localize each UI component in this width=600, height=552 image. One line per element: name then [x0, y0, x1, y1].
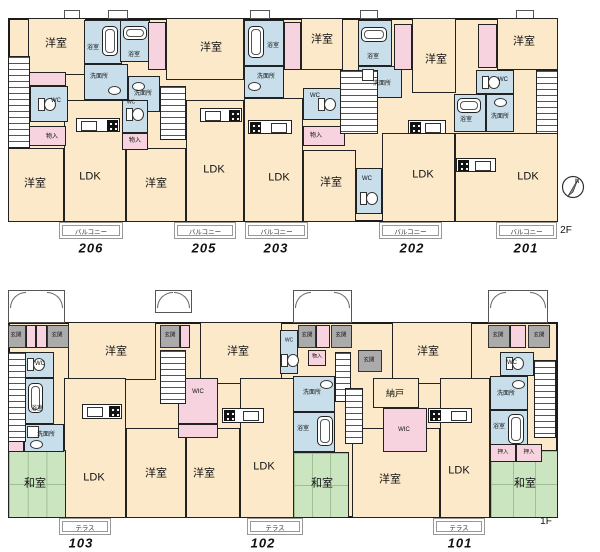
staircase — [534, 360, 556, 438]
staircase — [345, 388, 363, 444]
label-room: 物入 — [310, 133, 322, 139]
basin — [512, 380, 525, 389]
stove-icon — [229, 110, 240, 121]
toilet — [281, 354, 298, 365]
kitchen-counter — [428, 408, 472, 423]
closet — [284, 22, 301, 70]
label-room: 浴室 — [128, 52, 140, 58]
label-room: LDK — [412, 170, 433, 181]
kitchen-sink-icon — [205, 111, 221, 121]
room-washroom — [84, 64, 128, 100]
label-room: WC — [51, 98, 61, 104]
label-room: 洋室 — [200, 43, 222, 54]
unit-202: 202 — [400, 242, 425, 255]
label-room: 押入 — [523, 450, 534, 456]
label-room: LDK — [268, 173, 289, 184]
bathtub — [248, 26, 264, 58]
stove-icon — [224, 410, 235, 421]
staircase — [536, 70, 558, 134]
bathtub — [102, 26, 118, 56]
label-room: 浴室 — [31, 406, 43, 412]
kitchen-counter — [200, 108, 242, 122]
label-room: 玄関 — [51, 333, 62, 339]
label-room: 玄関 — [301, 333, 312, 339]
label-room: 和室 — [311, 479, 333, 490]
label-room: 玄関 — [492, 333, 503, 339]
balcony: バルコニー — [496, 222, 557, 239]
stove-icon — [430, 410, 441, 421]
label-room: 洗面所 — [303, 390, 321, 396]
kitchen-counter — [82, 404, 122, 419]
basin — [108, 86, 121, 95]
label-room: 物入 — [129, 138, 141, 144]
shoe-closet — [316, 325, 330, 348]
kitchen-sink-icon — [475, 161, 491, 171]
label-room: 納戸 — [386, 390, 404, 399]
label-room: 玄関 — [335, 333, 346, 339]
label-room: 洋室 — [513, 37, 535, 48]
bathtub — [508, 414, 524, 444]
label-room: 洋室 — [105, 347, 127, 358]
bathtub — [123, 26, 147, 40]
closet — [28, 72, 66, 86]
porch — [250, 10, 270, 19]
label-room: 洋室 — [145, 469, 167, 480]
basin — [30, 440, 43, 449]
stove-icon — [107, 120, 118, 131]
unit-205: 205 — [192, 242, 217, 255]
kitchen-sink-icon — [451, 411, 467, 421]
kitchen-counter — [222, 408, 264, 423]
room-ldk — [455, 133, 558, 222]
label-room: 洗面所 — [497, 391, 515, 397]
balcony: バルコニー — [245, 222, 308, 239]
shoe-closet — [26, 325, 36, 348]
label-room: WIC — [192, 389, 204, 395]
kitchen-sink-icon — [271, 123, 287, 133]
label-room: 物入 — [312, 355, 322, 360]
label-room: 玄関 — [164, 333, 175, 339]
room-ldk — [64, 378, 126, 518]
staircase — [160, 350, 186, 404]
kitchen-sink-icon — [425, 123, 441, 133]
label-room: WC — [285, 339, 293, 344]
label-room: WC — [310, 93, 320, 99]
shoe-closet — [510, 325, 526, 348]
stove-icon — [458, 160, 469, 171]
kitchen-sink-icon — [81, 121, 97, 131]
label-room: WC — [35, 361, 45, 367]
label-room: 洗面所 — [90, 74, 108, 80]
label-room: 洗面所 — [491, 114, 509, 120]
label-room: 洗面所 — [257, 74, 275, 80]
unit-103: 103 — [69, 537, 94, 550]
room-ldk — [440, 378, 490, 518]
porch — [360, 10, 378, 19]
floor-tag-2f: 2F — [560, 226, 572, 236]
label-room: 和室 — [514, 479, 536, 490]
label-room: 洋室 — [379, 475, 401, 486]
staircase — [8, 56, 30, 148]
bathtub — [457, 98, 481, 113]
label-room: 玄関 — [363, 358, 374, 364]
label-room: 洋室 — [417, 347, 439, 358]
kitchen-counter — [456, 158, 496, 172]
closet — [178, 424, 218, 438]
label-room: LDK — [79, 172, 100, 183]
toilet — [126, 108, 143, 119]
kitchen-counter — [248, 120, 292, 134]
label-room: 洋室 — [45, 39, 67, 50]
floor-tag-1f: 1F — [540, 517, 552, 527]
terrace: テラス — [433, 518, 485, 535]
label-room: 和室 — [24, 479, 46, 490]
unit-102: 102 — [251, 537, 276, 550]
unit-101: 101 — [448, 537, 473, 550]
stove-icon — [410, 122, 421, 133]
staircase — [160, 86, 186, 140]
kitchen-counter — [408, 120, 446, 134]
shoe-closet — [180, 325, 190, 348]
label-room: 玄関 — [533, 333, 544, 339]
bathtub — [317, 416, 333, 446]
stove-icon — [109, 406, 120, 417]
bathtub — [361, 27, 387, 42]
label-room: 浴室 — [460, 117, 472, 123]
label-room: 洋室 — [227, 347, 249, 358]
unit-206: 206 — [79, 242, 104, 255]
kitchen-sink-icon — [243, 411, 259, 421]
label-room: 洋室 — [24, 179, 46, 190]
toilet — [318, 98, 335, 109]
toilet — [482, 76, 499, 87]
label-room: WC — [498, 77, 508, 83]
label-room: 洗面所 — [134, 91, 152, 97]
label-room: 洋室 — [425, 55, 447, 66]
washer — [362, 69, 374, 81]
balcony: バルコニー — [59, 222, 123, 239]
label-room: WC — [507, 360, 517, 366]
floor-plan-canvas: バルコニーバルコニーバルコニーバルコニーバルコニーテラステラステラス洋室洋室洋室… — [0, 0, 600, 552]
closet — [148, 22, 166, 70]
basin — [320, 380, 333, 389]
svg-text:N: N — [575, 179, 579, 185]
porch — [108, 10, 128, 19]
label-room: WC — [127, 101, 135, 106]
label-room: 浴室 — [493, 424, 505, 430]
label-room: 押入 — [497, 450, 508, 456]
label-room: 洋室 — [311, 35, 333, 46]
unit-203: 203 — [264, 242, 289, 255]
label-room: 洗面所 — [37, 432, 55, 438]
compass-north-icon: N — [558, 172, 588, 202]
label-room: 洋室 — [320, 178, 342, 189]
label-room: 玄関 — [10, 333, 21, 339]
staircase — [8, 352, 26, 442]
basin — [248, 82, 261, 91]
unit-201: 201 — [514, 242, 539, 255]
balcony: バルコニー — [174, 222, 236, 239]
terrace: テラス — [59, 518, 111, 535]
closet — [394, 24, 412, 70]
terrace: テラス — [247, 518, 303, 535]
shoe-closet — [36, 325, 47, 348]
room-ldk — [240, 378, 295, 518]
label-room: 浴室 — [267, 43, 279, 49]
label-room: LDK — [203, 165, 224, 176]
label-room: LDK — [448, 466, 469, 477]
label-room: 浴室 — [367, 54, 379, 60]
room-wc — [356, 168, 382, 214]
kitchen-sink-icon — [87, 407, 103, 417]
label-room: WIC — [398, 427, 410, 433]
label-room: LDK — [83, 473, 104, 484]
toilet — [360, 192, 377, 203]
label-room: 洋室 — [193, 469, 215, 480]
label-room: 物入 — [46, 134, 58, 140]
label-room: 浴室 — [297, 426, 309, 432]
label-room: LDK — [253, 462, 274, 473]
stove-icon — [250, 122, 261, 133]
closet — [478, 24, 497, 68]
kitchen-counter — [76, 118, 120, 132]
basin — [132, 82, 145, 91]
label-room: 洗面所 — [373, 81, 391, 87]
basin — [494, 98, 507, 107]
label-room: 洋室 — [145, 179, 167, 190]
label-room: LDK — [517, 172, 538, 183]
room-ldk — [244, 98, 303, 222]
balcony: バルコニー — [379, 222, 442, 239]
label-room: 浴室 — [87, 45, 99, 51]
label-room: WC — [362, 176, 372, 182]
